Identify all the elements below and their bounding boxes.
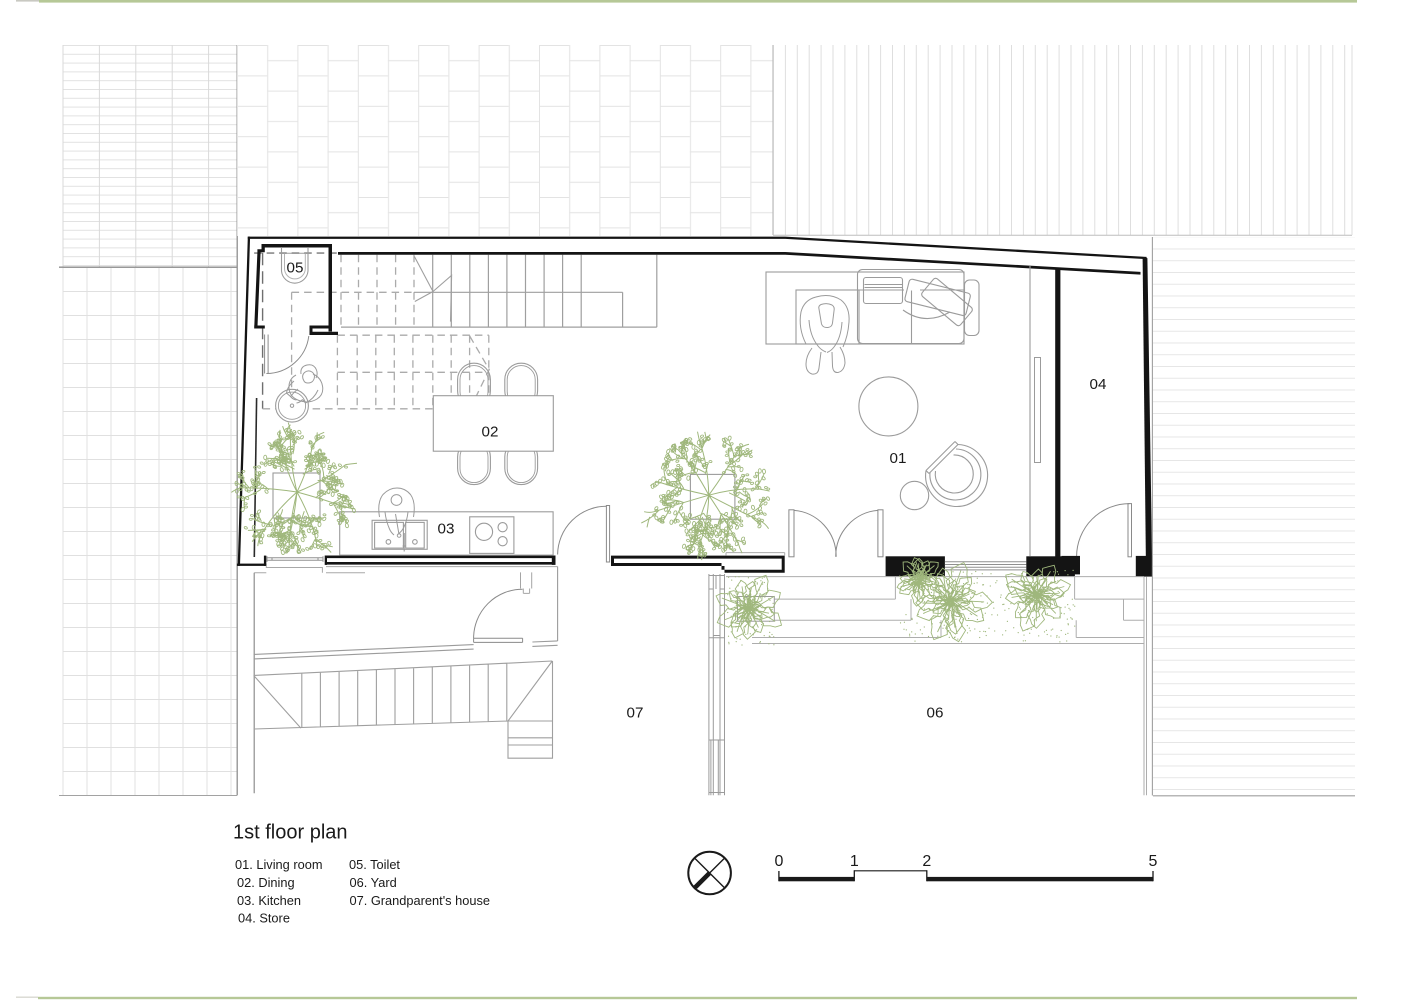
svg-text:02: 02 (482, 424, 499, 441)
svg-text:07. Grandparent's house: 07. Grandparent's house (350, 893, 490, 908)
svg-text:2: 2 (922, 853, 931, 870)
svg-text:1: 1 (850, 853, 859, 870)
svg-text:05. Toilet: 05. Toilet (349, 857, 400, 872)
svg-text:06: 06 (927, 705, 944, 722)
svg-text:06. Yard: 06. Yard (350, 875, 397, 890)
svg-text:04. Store: 04. Store (238, 911, 290, 926)
svg-text:1st floor plan: 1st floor plan (233, 822, 348, 844)
svg-text:0: 0 (774, 853, 783, 870)
svg-text:03. Kitchen: 03. Kitchen (237, 893, 301, 908)
svg-text:5: 5 (1149, 853, 1158, 870)
svg-text:03: 03 (438, 521, 455, 538)
svg-text:01: 01 (890, 450, 907, 467)
svg-text:04: 04 (1090, 376, 1107, 393)
svg-text:02. Dining: 02. Dining (237, 875, 295, 890)
svg-text:05: 05 (287, 260, 304, 277)
svg-text:07: 07 (627, 705, 644, 722)
svg-text:01. Living room: 01. Living room (235, 857, 323, 872)
